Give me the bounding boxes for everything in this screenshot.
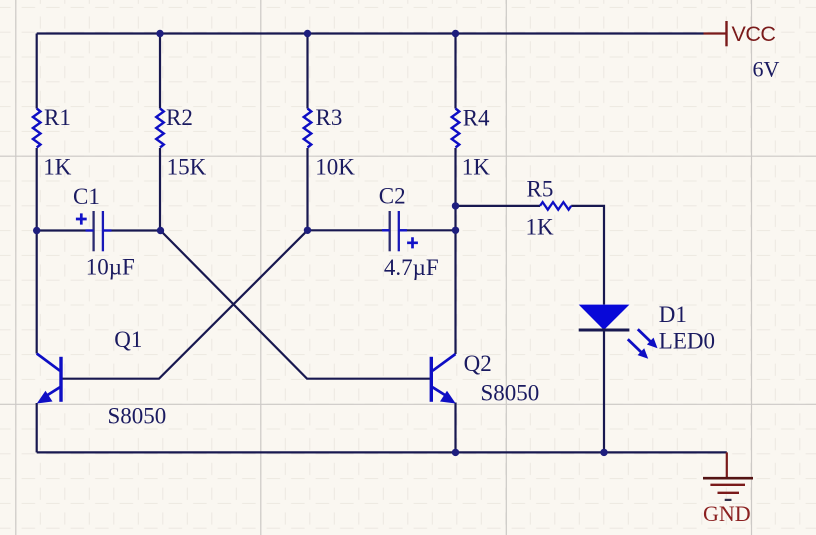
svg-text:15K: 15K xyxy=(167,155,207,180)
svg-text:R2: R2 xyxy=(166,105,193,130)
svg-text:S8050: S8050 xyxy=(108,404,167,429)
svg-text:6V: 6V xyxy=(753,57,780,82)
svg-text:R3: R3 xyxy=(316,105,343,130)
svg-text:LED0: LED0 xyxy=(659,328,715,353)
svg-text:1K: 1K xyxy=(462,155,491,180)
svg-text:1K: 1K xyxy=(43,155,71,180)
svg-text:R4: R4 xyxy=(463,105,490,130)
svg-text:Q2: Q2 xyxy=(464,351,492,376)
svg-text:S8050: S8050 xyxy=(481,381,540,406)
svg-text:R5: R5 xyxy=(527,176,554,201)
svg-text:VCC: VCC xyxy=(732,22,776,46)
svg-text:10K: 10K xyxy=(315,155,355,180)
svg-text:4.7µF: 4.7µF xyxy=(384,255,439,280)
svg-text:R1: R1 xyxy=(44,105,71,130)
svg-text:10µF: 10µF xyxy=(86,254,135,279)
svg-text:C2: C2 xyxy=(379,184,406,209)
svg-text:1K: 1K xyxy=(526,214,555,239)
svg-text:GND: GND xyxy=(703,501,751,526)
svg-text:Q1: Q1 xyxy=(114,327,142,352)
svg-text:D1: D1 xyxy=(659,302,687,327)
svg-text:C1: C1 xyxy=(73,184,100,209)
